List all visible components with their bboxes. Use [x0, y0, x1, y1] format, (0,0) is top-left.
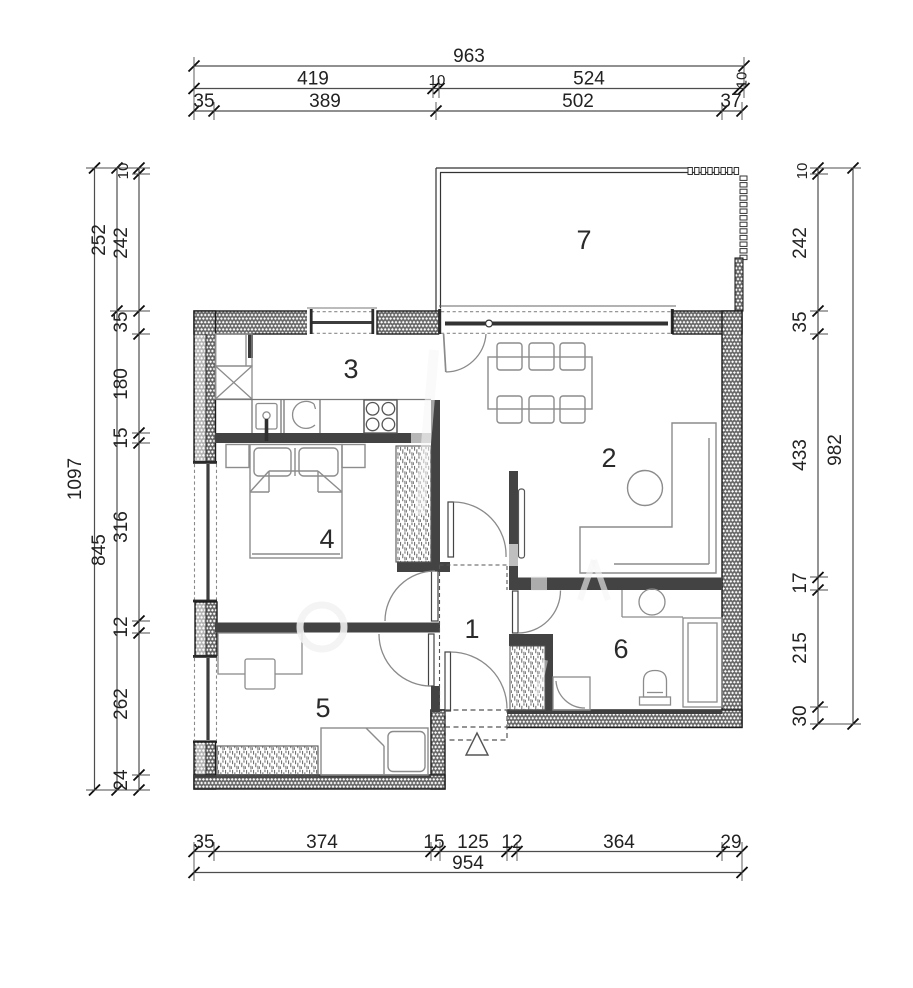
svg-text:963: 963: [453, 46, 485, 67]
svg-text:364: 364: [603, 832, 635, 853]
svg-text:7: 7: [576, 225, 591, 255]
svg-text:10: 10: [115, 163, 132, 180]
svg-text:15: 15: [111, 427, 132, 448]
svg-text:954: 954: [452, 853, 484, 874]
svg-text:524: 524: [573, 69, 605, 90]
svg-text:29: 29: [720, 832, 741, 853]
svg-text:35: 35: [193, 91, 214, 112]
svg-text:12: 12: [111, 616, 132, 637]
svg-text:502: 502: [562, 91, 594, 112]
svg-text:215: 215: [790, 632, 811, 664]
svg-text:35: 35: [790, 311, 811, 332]
svg-text:845: 845: [89, 534, 110, 566]
svg-text:242: 242: [790, 227, 811, 259]
svg-text:10: 10: [794, 163, 811, 180]
svg-text:252: 252: [89, 224, 110, 256]
svg-text:180: 180: [111, 368, 132, 400]
svg-text:10: 10: [734, 72, 751, 89]
svg-text:374: 374: [306, 832, 338, 853]
svg-text:30: 30: [790, 705, 811, 726]
svg-text:262: 262: [111, 688, 132, 720]
svg-text:433: 433: [790, 439, 811, 471]
svg-text:242: 242: [111, 227, 132, 259]
svg-text:12: 12: [501, 832, 522, 853]
svg-text:15: 15: [423, 832, 444, 853]
svg-text:17: 17: [790, 572, 811, 593]
svg-text:389: 389: [309, 91, 341, 112]
svg-text:6: 6: [613, 634, 628, 664]
svg-text:10: 10: [429, 72, 446, 89]
svg-text:2: 2: [601, 443, 616, 473]
svg-text:35: 35: [193, 832, 214, 853]
svg-text:3: 3: [343, 354, 358, 384]
svg-text:419: 419: [297, 69, 329, 90]
svg-text:5: 5: [315, 693, 330, 723]
svg-text:35: 35: [111, 311, 132, 332]
svg-text:982: 982: [825, 434, 846, 466]
svg-text:1097: 1097: [65, 458, 86, 500]
svg-text:37: 37: [720, 91, 741, 112]
svg-text:1: 1: [464, 614, 479, 644]
svg-text:316: 316: [111, 511, 132, 543]
svg-text:125: 125: [457, 832, 489, 853]
svg-text:24: 24: [111, 769, 132, 791]
svg-text:4: 4: [319, 524, 334, 554]
